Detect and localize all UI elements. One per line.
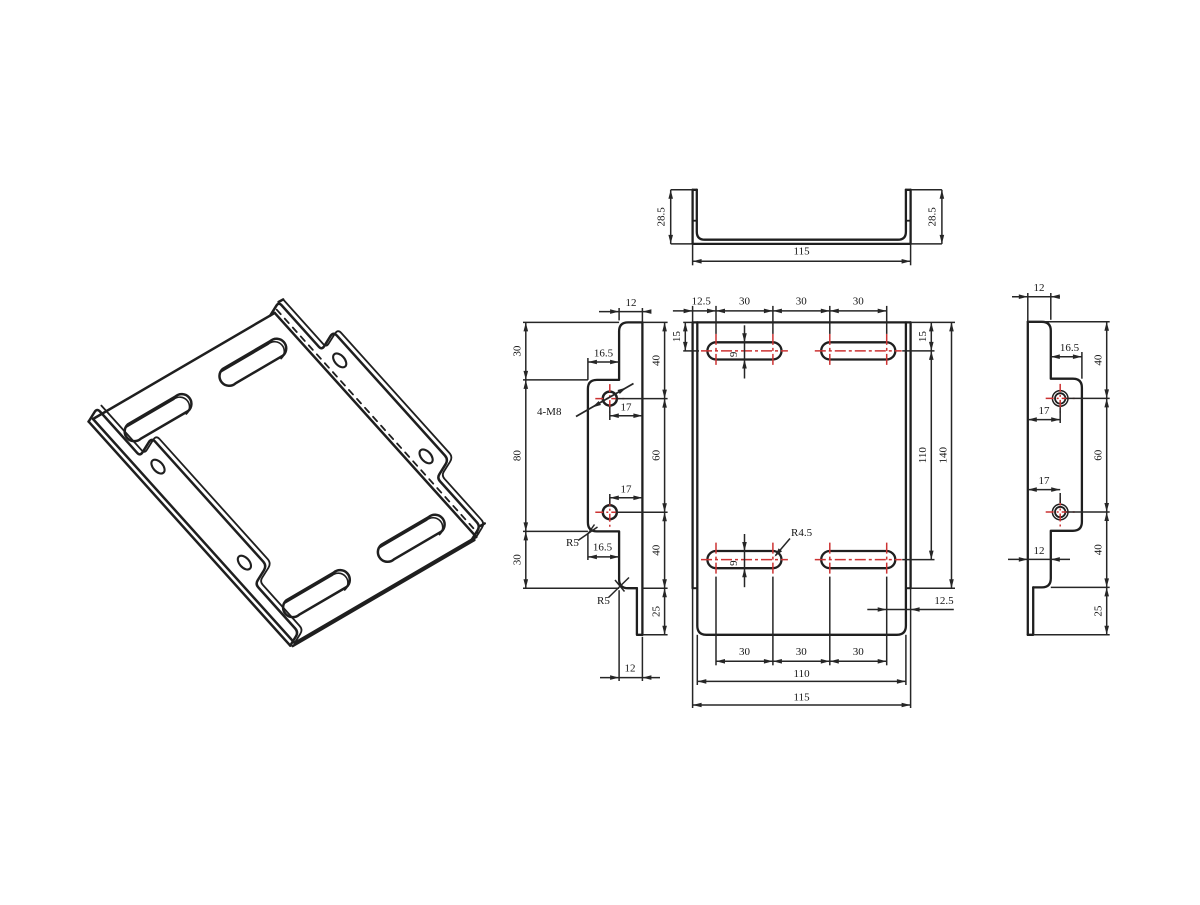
svg-text:9: 9 xyxy=(728,351,740,357)
svg-text:30: 30 xyxy=(853,296,865,308)
svg-text:4-M8: 4-M8 xyxy=(537,406,562,418)
svg-text:12: 12 xyxy=(625,663,636,675)
svg-text:28.5: 28.5 xyxy=(656,207,668,227)
svg-text:16.5: 16.5 xyxy=(594,348,614,360)
svg-text:17: 17 xyxy=(621,402,633,414)
svg-text:30: 30 xyxy=(739,646,751,658)
svg-text:16.5: 16.5 xyxy=(593,541,613,553)
svg-text:30: 30 xyxy=(739,296,751,308)
svg-text:15: 15 xyxy=(917,331,929,343)
svg-text:40: 40 xyxy=(651,544,663,556)
svg-text:140: 140 xyxy=(937,447,949,464)
svg-text:R5: R5 xyxy=(566,537,579,549)
svg-text:17: 17 xyxy=(1039,405,1051,417)
svg-text:12.5: 12.5 xyxy=(934,595,954,607)
svg-text:110: 110 xyxy=(794,668,811,680)
svg-text:115: 115 xyxy=(794,246,811,258)
svg-text:30: 30 xyxy=(853,646,865,658)
svg-text:9: 9 xyxy=(728,560,740,566)
svg-text:80: 80 xyxy=(511,450,523,462)
svg-text:12: 12 xyxy=(1034,545,1045,557)
svg-text:40: 40 xyxy=(1093,354,1105,366)
svg-text:12: 12 xyxy=(626,297,637,309)
svg-text:28.5: 28.5 xyxy=(927,207,939,227)
svg-text:17: 17 xyxy=(621,484,633,496)
svg-text:12: 12 xyxy=(1034,282,1045,294)
svg-text:30: 30 xyxy=(511,345,523,357)
svg-text:40: 40 xyxy=(1093,544,1105,556)
svg-text:60: 60 xyxy=(651,449,663,461)
svg-text:115: 115 xyxy=(794,692,811,704)
svg-text:R4.5: R4.5 xyxy=(791,527,813,539)
svg-text:30: 30 xyxy=(511,554,523,566)
svg-text:30: 30 xyxy=(796,646,808,658)
svg-text:110: 110 xyxy=(917,447,929,464)
svg-text:25: 25 xyxy=(1093,605,1105,617)
svg-text:16.5: 16.5 xyxy=(1060,342,1080,354)
svg-text:15: 15 xyxy=(671,331,683,343)
svg-text:17: 17 xyxy=(1039,475,1051,487)
svg-text:40: 40 xyxy=(651,355,663,367)
svg-text:30: 30 xyxy=(796,296,808,308)
svg-text:60: 60 xyxy=(1093,449,1105,461)
svg-text:12.5: 12.5 xyxy=(692,296,712,308)
svg-text:25: 25 xyxy=(651,606,663,618)
